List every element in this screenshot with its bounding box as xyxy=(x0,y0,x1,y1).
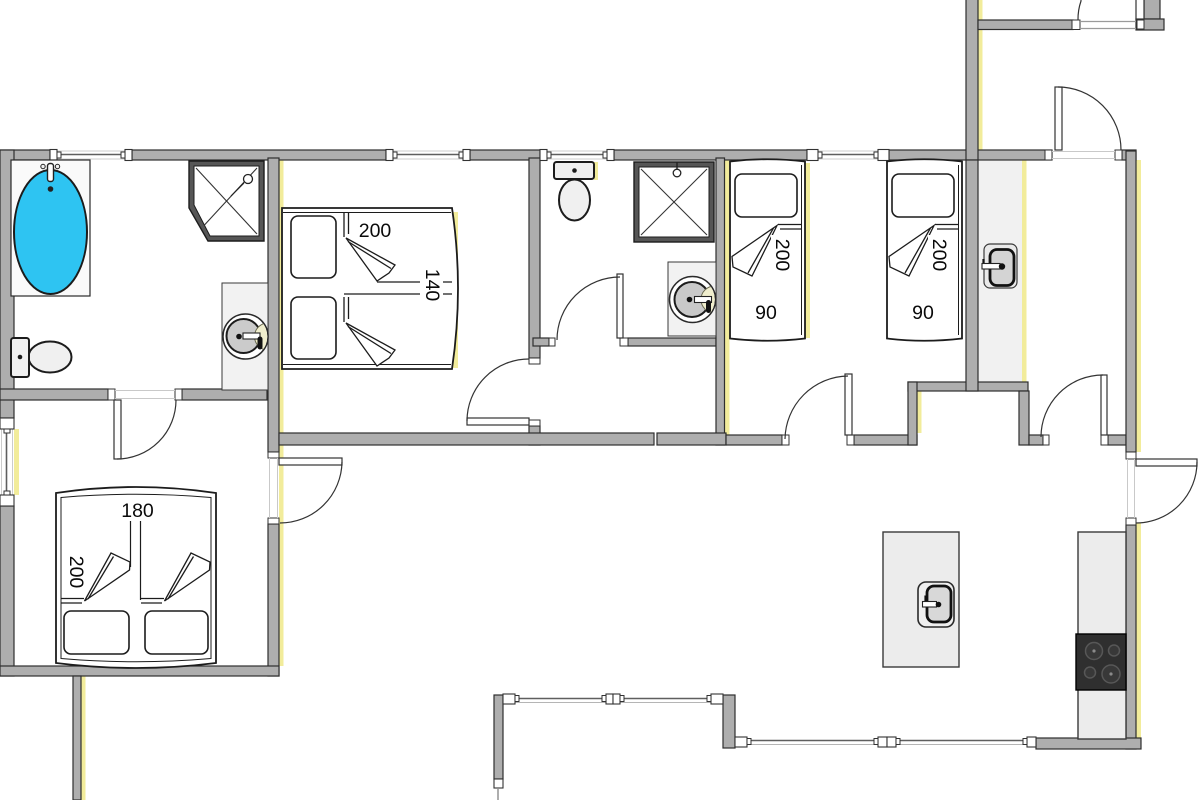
svg-text:200: 200 xyxy=(771,239,793,272)
svg-text:140: 140 xyxy=(421,269,443,302)
svg-text:90: 90 xyxy=(755,302,777,324)
svg-text:200: 200 xyxy=(928,239,950,272)
svg-text:180: 180 xyxy=(121,500,154,522)
svg-text:200: 200 xyxy=(359,220,392,242)
svg-text:200: 200 xyxy=(65,556,87,589)
svg-text:90: 90 xyxy=(912,302,934,324)
